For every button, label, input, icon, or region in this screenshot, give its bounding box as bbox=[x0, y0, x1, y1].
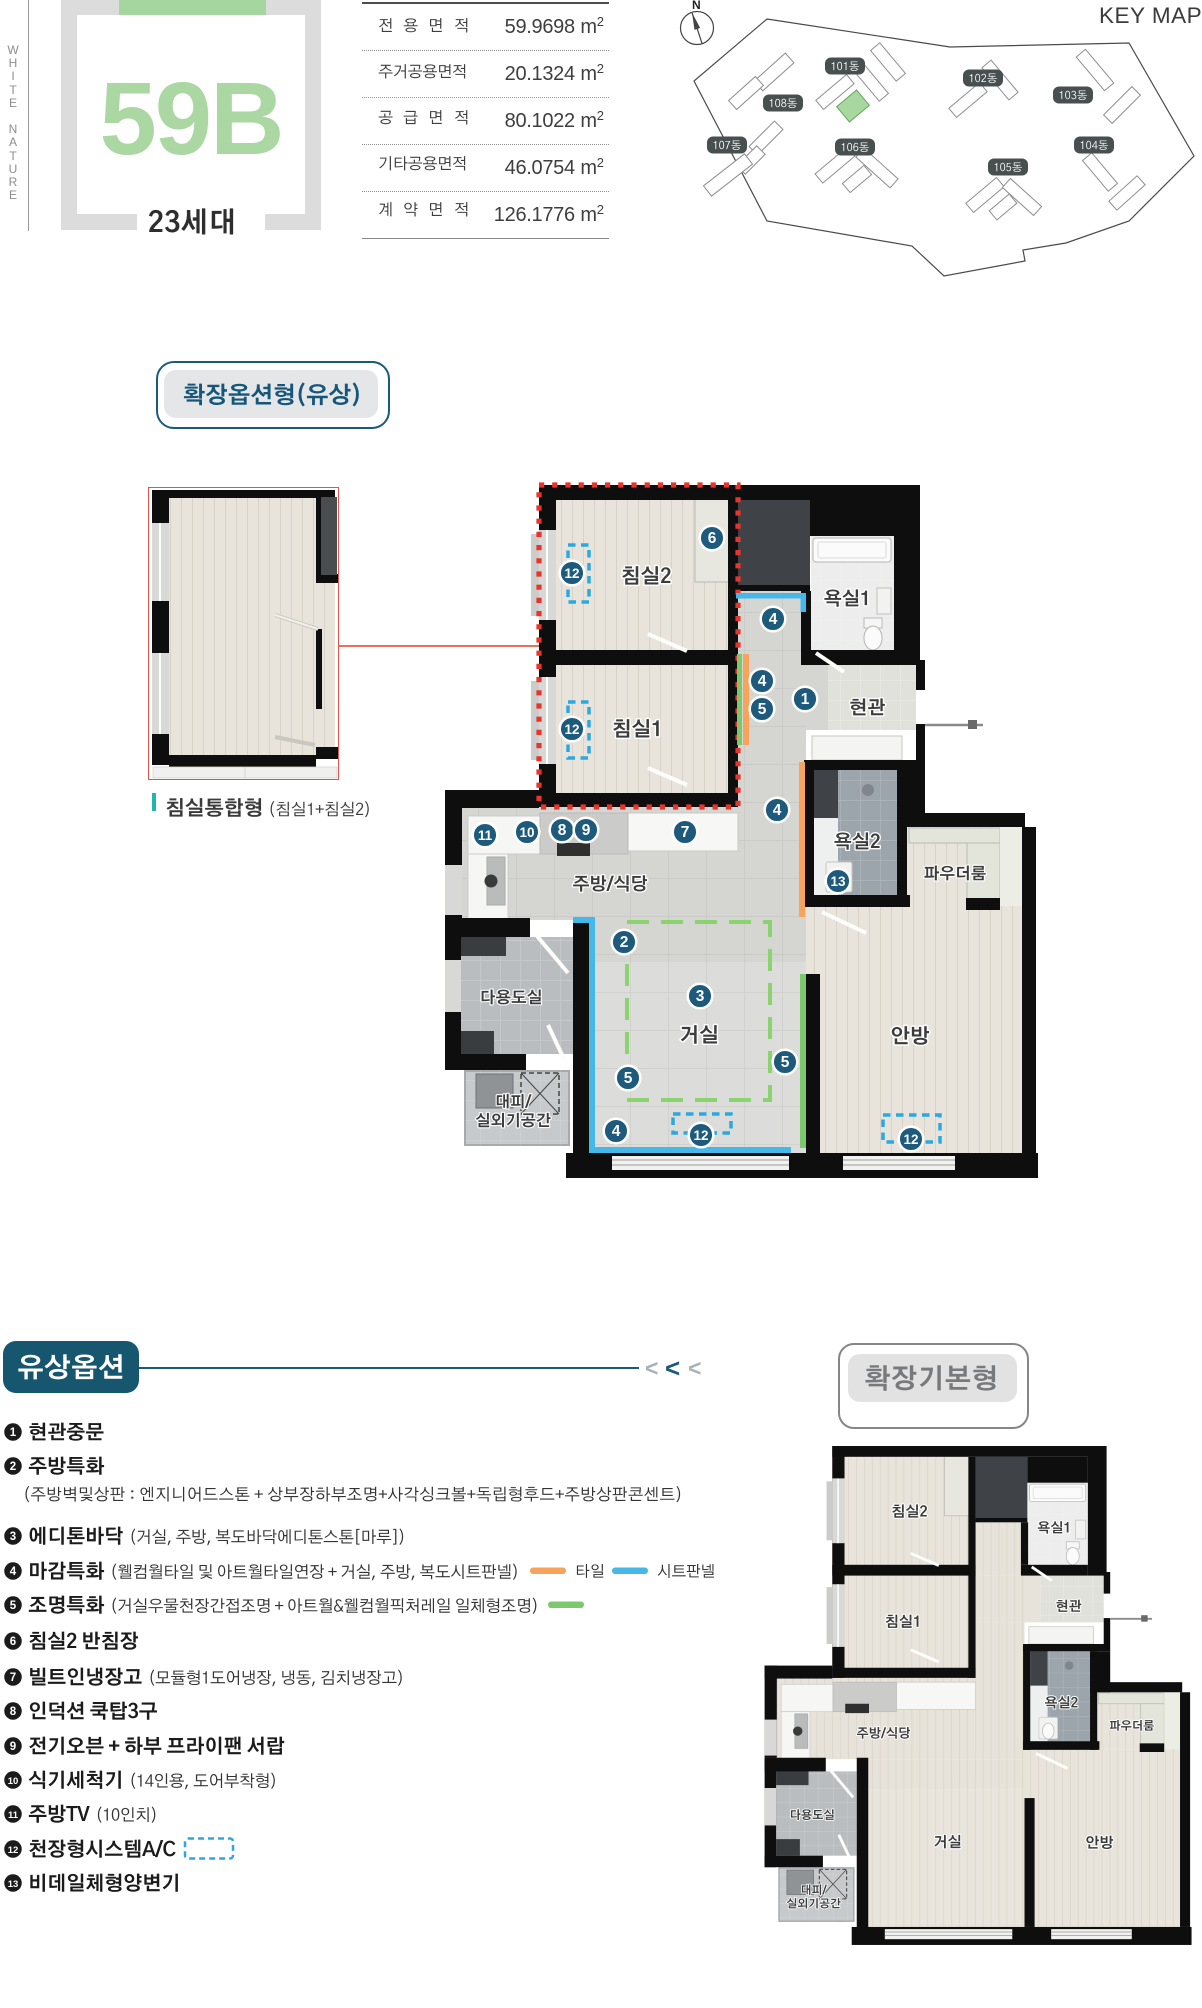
svg-text:11: 11 bbox=[8, 1810, 19, 1821]
svg-text:9: 9 bbox=[10, 1741, 16, 1753]
svg-text:5: 5 bbox=[10, 1600, 17, 1612]
svg-text:12: 12 bbox=[8, 1845, 19, 1856]
svg-text:6: 6 bbox=[10, 1636, 16, 1648]
svg-text:1: 1 bbox=[10, 1427, 17, 1439]
svg-text:8: 8 bbox=[10, 1706, 17, 1718]
svg-text:7: 7 bbox=[10, 1672, 16, 1684]
svg-text:4: 4 bbox=[10, 1566, 17, 1578]
svg-text:10: 10 bbox=[8, 1776, 19, 1787]
svg-text:13: 13 bbox=[8, 1879, 19, 1890]
svg-text:3: 3 bbox=[10, 1531, 16, 1543]
svg-text:2: 2 bbox=[10, 1461, 16, 1473]
